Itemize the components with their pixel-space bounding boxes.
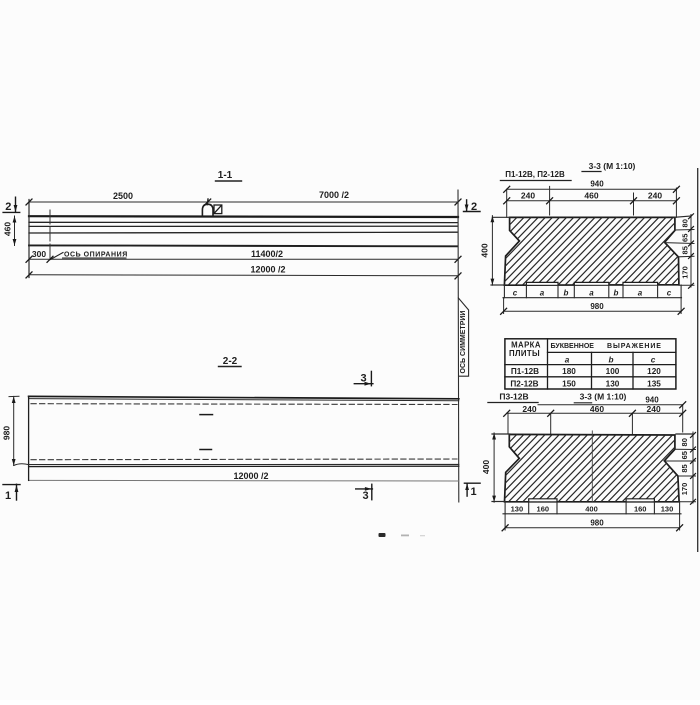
svg-text:85: 85 [681,246,690,254]
svg-text:300: 300 [32,249,46,259]
svg-text:a: a [565,355,570,364]
svg-text:130: 130 [511,505,524,514]
svg-text:ВЫРАЖЕНИЕ: ВЫРАЖЕНИЕ [607,343,662,350]
svg-text:100: 100 [606,367,620,376]
svg-text:c: c [667,289,672,298]
svg-text:460: 460 [590,404,604,414]
svg-text:1: 1 [470,486,476,498]
svg-text:400: 400 [585,505,598,514]
svg-text:85: 85 [680,464,689,472]
svg-text:a: a [540,289,545,298]
svg-text:2500: 2500 [113,191,133,201]
svg-text:1-1: 1-1 [218,170,233,181]
svg-text:940: 940 [590,180,604,189]
svg-text:a: a [589,289,594,298]
svg-text:a: a [638,289,643,298]
svg-text:П1-12В: П1-12В [511,367,539,376]
svg-text:400: 400 [481,460,491,474]
svg-text:65: 65 [680,451,689,459]
svg-text:240: 240 [521,191,535,201]
svg-text:b: b [564,289,569,298]
svg-text:135: 135 [647,380,661,389]
svg-text:130: 130 [606,380,620,389]
svg-text:3: 3 [362,490,368,502]
svg-text:b: b [614,289,619,298]
svg-text:460: 460 [3,222,13,236]
svg-text:240: 240 [522,404,536,414]
svg-text:ПЛИТЫ: ПЛИТЫ [509,349,540,358]
svg-text:БУКВЕННОЕ: БУКВЕННОЕ [551,343,595,350]
svg-text:b: b [608,355,613,364]
svg-text:65: 65 [681,234,690,242]
svg-text:460: 460 [584,191,598,201]
svg-text:П3-12В: П3-12В [499,392,528,402]
svg-text:12000 /2: 12000 /2 [250,265,285,275]
svg-text:400: 400 [480,243,490,257]
svg-text:120: 120 [647,367,661,376]
svg-text:7000 /2: 7000 /2 [319,190,349,200]
svg-text:180: 180 [562,367,576,376]
svg-text:980: 980 [590,519,604,528]
svg-text:c: c [513,289,518,298]
svg-text:3: 3 [360,372,366,384]
svg-text:160: 160 [634,505,647,514]
svg-text:170: 170 [680,483,689,496]
svg-text:2-2: 2-2 [223,356,238,367]
svg-text:11400/2: 11400/2 [251,249,283,259]
svg-text:П2-12В: П2-12В [510,380,538,389]
svg-text:980: 980 [590,302,604,311]
svg-text:3-3 (М 1:10): 3-3 (М 1:10) [580,392,627,402]
svg-text:12000 /2: 12000 /2 [233,471,268,481]
svg-text:170: 170 [681,266,690,279]
svg-text:150: 150 [562,380,576,389]
svg-text:2: 2 [471,201,477,213]
svg-text:П1-12В, П2-12В: П1-12В, П2-12В [505,170,565,179]
svg-text:2: 2 [5,201,11,213]
svg-text:ОСЬ ОПИРАНИЯ: ОСЬ ОПИРАНИЯ [64,252,128,259]
svg-text:980: 980 [2,426,12,440]
svg-text:160: 160 [537,505,550,514]
svg-text:240: 240 [647,404,661,414]
svg-text:ОСЬ СИММЕТРИИ: ОСЬ СИММЕТРИИ [460,311,467,374]
svg-text:240: 240 [648,191,662,201]
svg-text:130: 130 [661,505,674,514]
svg-text:1: 1 [5,490,11,502]
svg-text:80: 80 [680,438,689,446]
svg-text:80: 80 [681,219,690,227]
svg-text:3-3 (М 1:10): 3-3 (М 1:10) [589,161,636,171]
svg-text:c: c [651,355,656,364]
